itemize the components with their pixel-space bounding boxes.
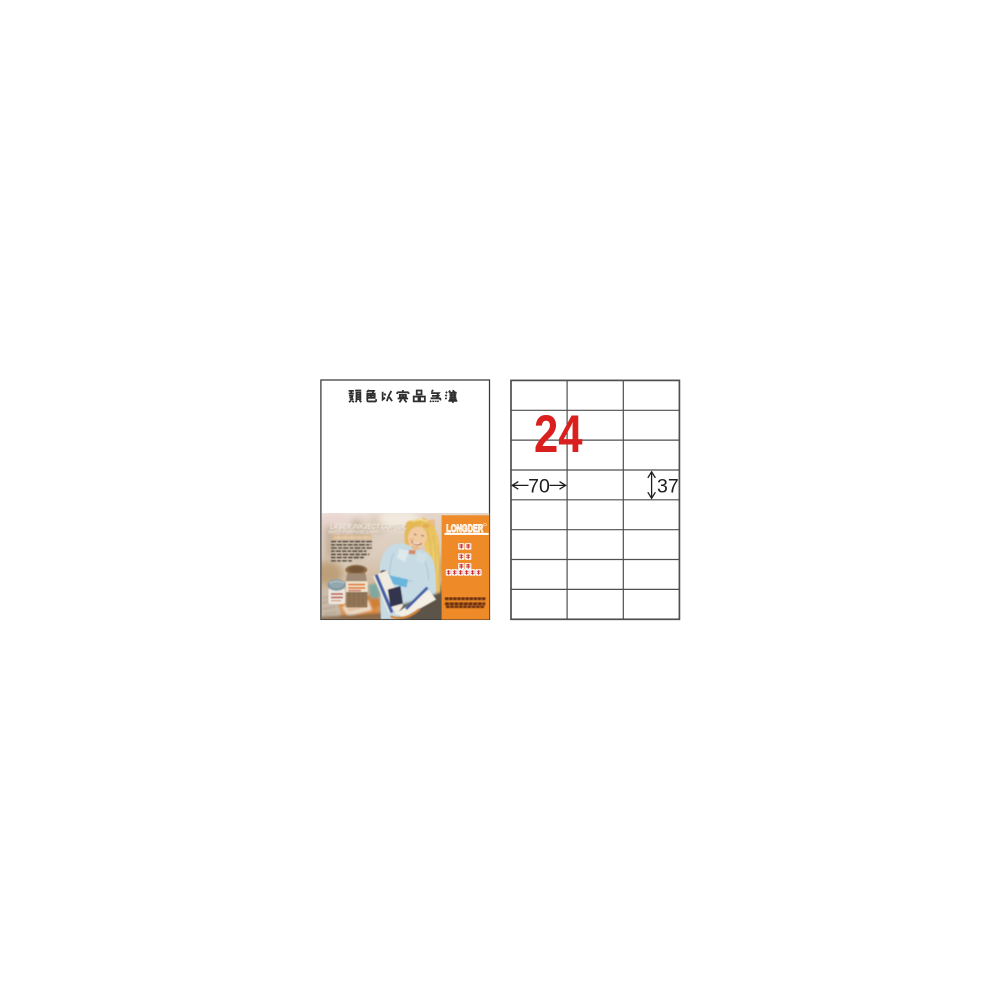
svg-text:70: 70 xyxy=(528,475,550,497)
svg-text:37: 37 xyxy=(657,475,679,497)
svg-text:24: 24 xyxy=(534,405,583,464)
